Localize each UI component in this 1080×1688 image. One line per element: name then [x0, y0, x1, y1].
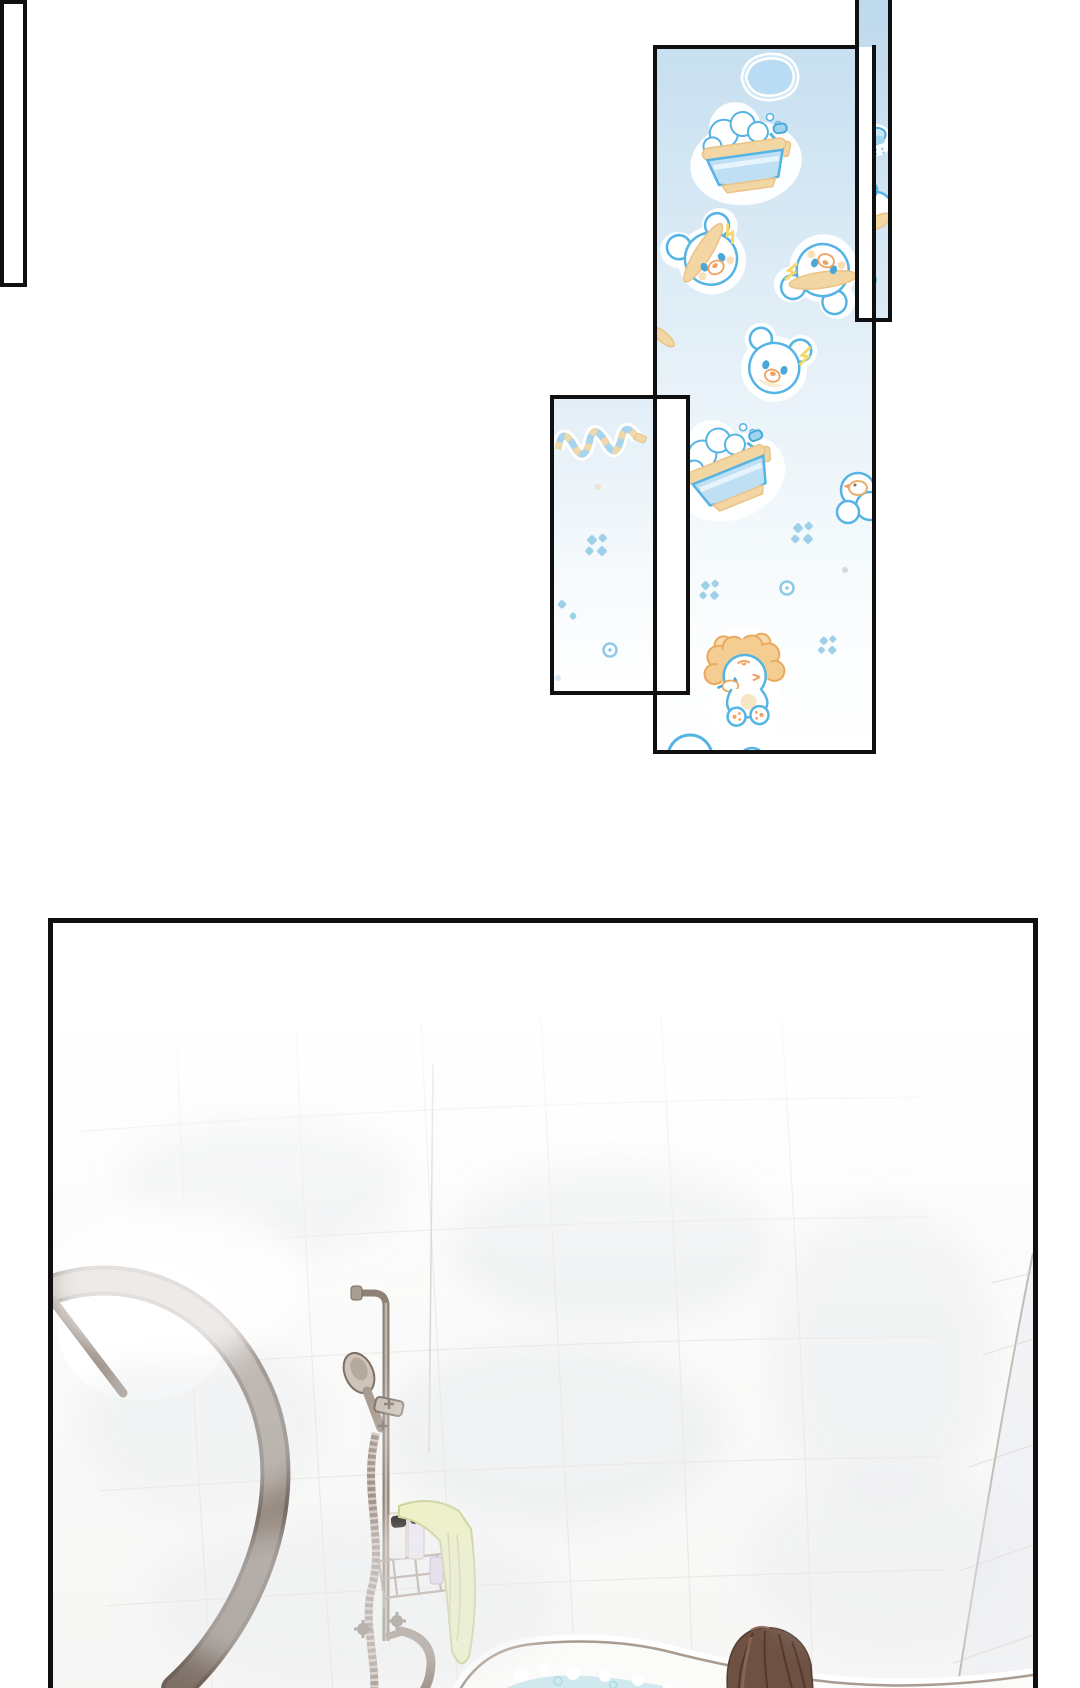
connector-bar [0, 0, 27, 287]
faint-dot [842, 567, 848, 573]
pattern-panel-right-border [872, 45, 876, 322]
bathroom-panel [48, 918, 1038, 1688]
overlap-gap-left [657, 399, 686, 691]
fog-top [53, 923, 1033, 1283]
faint-dot [555, 675, 561, 681]
pattern-panel-left-border [653, 395, 657, 695]
hex-bubble [604, 644, 617, 657]
faint-dot [595, 484, 601, 490]
overlap-gap-right [859, 47, 872, 318]
bathroom-art [53, 923, 1033, 1688]
hex-bubble [781, 582, 794, 595]
pipe-knob [351, 1286, 362, 1300]
comic-page [0, 0, 1080, 1688]
sticker-soap-bubble [744, 56, 796, 98]
